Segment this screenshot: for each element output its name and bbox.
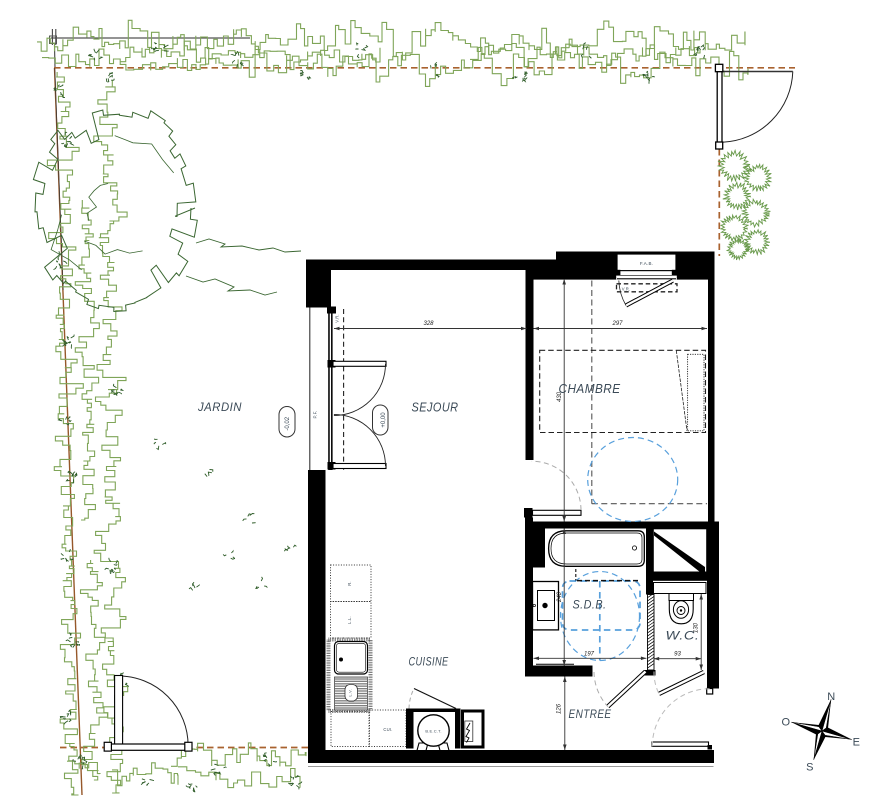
svg-text:-0,02: -0,02 xyxy=(285,416,291,430)
svg-text:R.: R. xyxy=(347,581,352,586)
svg-text:328: 328 xyxy=(423,321,434,327)
svg-text:+0,00: +0,00 xyxy=(381,412,387,428)
svg-text:CUI.: CUI. xyxy=(383,727,392,732)
svg-text:L.V.: L.V. xyxy=(347,689,352,697)
svg-text:P.F.: P.F. xyxy=(313,411,318,419)
svg-text:O: O xyxy=(781,717,790,729)
svg-text:297: 297 xyxy=(611,321,623,327)
svg-text:240: 240 xyxy=(557,591,563,603)
svg-text:E: E xyxy=(853,737,861,749)
svg-text:B.E.C.T.: B.E.C.T. xyxy=(425,729,441,734)
svg-text:197: 197 xyxy=(584,652,595,658)
svg-text:V.R.: V.R. xyxy=(335,314,340,323)
svg-text:S: S xyxy=(806,762,814,774)
svg-text:W.C.: W.C. xyxy=(666,629,700,643)
svg-text:V.R.: V.R. xyxy=(622,287,631,292)
svg-text:126: 126 xyxy=(557,703,563,714)
svg-text:ENTREE: ENTREE xyxy=(569,707,612,721)
svg-text:L.L.: L.L. xyxy=(347,616,352,624)
svg-text:CUISINE: CUISINE xyxy=(409,655,449,669)
svg-text:SEJOUR: SEJOUR xyxy=(412,401,459,415)
svg-text:JARDIN: JARDIN xyxy=(197,402,242,414)
svg-text:N: N xyxy=(827,691,835,703)
svg-text:CHAMBRE: CHAMBRE xyxy=(559,382,621,396)
svg-text:F.A.B.: F.A.B. xyxy=(640,261,653,266)
svg-text:93: 93 xyxy=(674,652,681,658)
svg-text:S.D.B.: S.D.B. xyxy=(573,598,607,612)
